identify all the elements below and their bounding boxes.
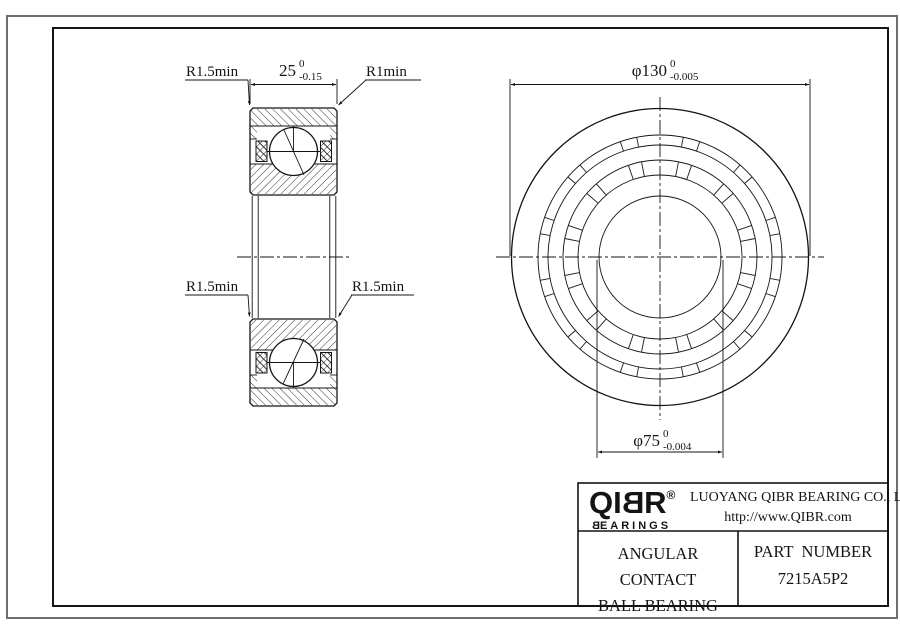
part-number-value: 7215A5P2: [738, 569, 888, 589]
cage-pocket-edge: [637, 137, 639, 147]
cage-pocket-edge: [568, 177, 576, 184]
part-name-line1: ANGULAR CONTACT: [578, 541, 738, 593]
drawing-sheet: 25 0 -0.15 R1.5min R1min R1.5min R1.5min: [0, 0, 900, 636]
cage-pocket-edge: [714, 319, 724, 330]
cage-pocket-edge: [766, 294, 776, 297]
cage-pocket-edge: [587, 311, 598, 321]
dim-outer-value: φ130: [632, 61, 667, 80]
cage-pocket-edge: [637, 367, 639, 377]
cage-pocket-edge: [687, 165, 692, 179]
cage-pocket-edge: [628, 165, 633, 179]
cage-pocket-edge: [568, 225, 582, 230]
label-r15-mid-left: R1.5min: [186, 279, 239, 295]
cage-pocket-edge: [596, 319, 606, 330]
cage-block: [256, 141, 267, 162]
cage-pocket-edge: [545, 217, 555, 220]
dimension-width: 25 0 -0.15: [250, 58, 337, 104]
part-number-label: PART NUMBER: [738, 542, 888, 562]
company-logo: QIBR® BEARINGS: [589, 487, 675, 532]
cage-pocket-edge: [770, 234, 780, 236]
cage-pocket-edge: [681, 367, 683, 377]
section-view: [237, 108, 351, 406]
cage-pocket-edge: [697, 142, 700, 152]
cage-pocket-edge: [580, 165, 587, 173]
label-r1-top-right: R1min: [366, 64, 407, 80]
cage-pocket-edge: [766, 217, 776, 220]
cage-block: [321, 141, 332, 162]
cage-pocket-edge: [620, 142, 623, 152]
cage-pocket-edge: [722, 311, 733, 321]
cage-pocket-edge: [738, 284, 752, 289]
dim-bore-tol-lower: -0.004: [663, 441, 692, 453]
dim-bore-value: φ75: [633, 431, 660, 450]
registered-mark: ®: [667, 488, 676, 502]
cage-pocket-edge: [738, 225, 752, 230]
cage-pocket-edge: [540, 278, 550, 280]
cage-pocket-edge: [568, 284, 582, 289]
cage-pocket-edge: [580, 342, 587, 350]
dim-width-value: 25: [279, 61, 296, 80]
cage-block: [321, 353, 332, 374]
part-name-line2: BALL BEARING: [578, 593, 738, 619]
dim-outer-tol-upper: 0: [670, 58, 676, 70]
cage-pocket-edge: [722, 193, 733, 203]
logo-wordmark: QIBR®: [589, 487, 675, 518]
cage-pocket-edge: [681, 137, 683, 147]
cage-pocket-edge: [734, 165, 741, 173]
cage-pocket-edge: [745, 177, 753, 184]
cage-pocket-edge: [642, 338, 645, 353]
cage-block: [256, 353, 267, 374]
cage-pocket-edge: [687, 335, 692, 349]
cage-pocket-edge: [587, 193, 598, 203]
outer-ring-hatch: [251, 109, 336, 126]
cage-pocket-edge: [697, 363, 700, 373]
engineering-drawing: 25 0 -0.15 R1.5min R1min R1.5min R1.5min: [0, 0, 900, 636]
company-name: LUOYANG QIBR BEARING CO., LTD: [690, 490, 886, 506]
dim-width-tol-upper: 0: [299, 58, 305, 70]
dim-bore-tol-upper: 0: [663, 428, 669, 440]
cage-pocket-edge: [540, 234, 550, 236]
cage-pocket-edge: [596, 184, 606, 195]
cage-pocket-edge: [620, 363, 623, 373]
cage-pocket-edge: [676, 162, 679, 177]
outer-border: [7, 16, 897, 618]
cage-pocket-edge: [734, 342, 741, 350]
part-name: ANGULAR CONTACT BALL BEARING: [578, 541, 738, 619]
cage-pocket-edge: [741, 239, 756, 242]
cage-pocket-edge: [565, 239, 580, 242]
cage-pocket-edge: [741, 273, 756, 276]
cage-pocket-edge: [642, 162, 645, 177]
label-r15-top-left: R1.5min: [186, 64, 239, 80]
cage-pocket-edge: [714, 184, 724, 195]
label-r15-mid-right: R1.5min: [352, 279, 405, 295]
dim-width-tol-lower: -0.15: [299, 71, 322, 83]
cage-pocket-edge: [676, 338, 679, 353]
company-url: http://www.QIBR.com: [690, 510, 886, 526]
dim-outer-tol-lower: -0.005: [670, 71, 699, 83]
cage-pocket-edge: [628, 335, 633, 349]
cage-pocket-edge: [745, 331, 753, 338]
cage-pocket-edge: [568, 331, 576, 338]
cage-pocket-edge: [565, 273, 580, 276]
front-view: [496, 97, 824, 420]
logo-subtitle: BEARINGS: [589, 520, 675, 532]
cage-pocket-edge: [545, 294, 555, 297]
cage-pocket-edge: [770, 278, 780, 280]
